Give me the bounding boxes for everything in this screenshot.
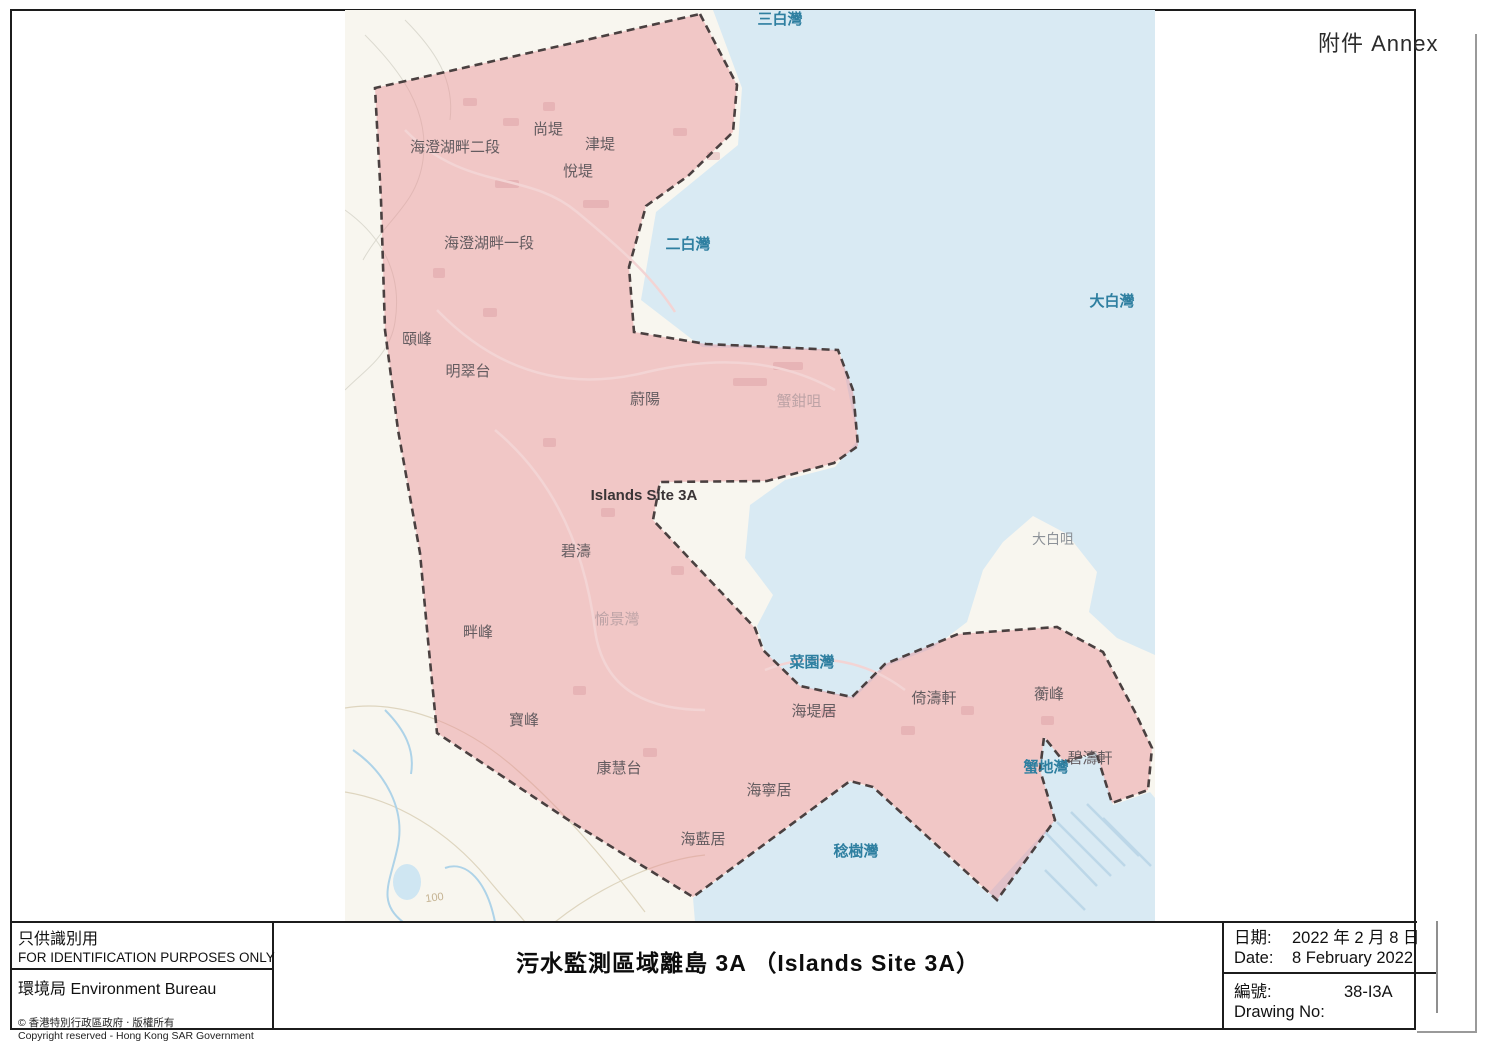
place-label: 尚堤 [533,121,563,138]
place-label: 碧濤軒 [1067,750,1112,767]
place-label: 海堤居 [791,703,836,720]
place-label: 蔚陽 [630,391,660,408]
copyright-zh: © 香港特別行政區政府 ‧ 版權所有 [10,1015,272,1030]
date-value-en: 8 February 2022 [1292,949,1413,967]
place-label: 頤峰 [402,331,432,348]
map-title: 污水監測區域離島 3A （Islands Site 3A） [276,921,1220,1001]
place-label: 蘅峰 [1034,686,1064,703]
place-label: 海澄湖畔一段 [444,235,534,252]
annex-heading: 附件 Annex [1318,26,1468,58]
place-label: 海寧居 [746,782,791,799]
place-label: 悅堤 [563,163,593,180]
bay-label: 三白灣 [757,10,802,28]
info-panel-overflow-edge [1436,921,1438,1013]
copyright-en: Copyright reserved - Hong Kong SAR Gover… [10,1030,272,1042]
pond [393,864,421,900]
place-label: 康慧台 [596,760,641,777]
bay-label: 菜園灣 [788,653,834,671]
place-label: 碧濤 [561,543,591,560]
place-label: 津堤 [585,136,615,153]
bureau-name: 環境局 Environment Bureau [10,970,272,999]
place-label: 畔峰 [463,624,493,641]
drawing-no-label-en: Drawing No: [1234,1003,1437,1022]
place-label: 海澄湖畔二段 [410,139,500,156]
place-label: 海藍居 [680,831,725,848]
place-label-faint: 蟹鉗咀 [776,393,821,410]
date-label-en: Date: [1234,949,1292,968]
drawing-no-label-zh: 編號: [1234,978,1292,1002]
document-page: 附件 Annex [0,0,1505,1058]
identification-note-en: FOR IDENTIFICATION PURPOSES ONLY [18,950,264,965]
place-label: 倚濤軒 [911,690,956,707]
place-label: 寶峰 [509,711,539,729]
place-label-faint: 愉景灣 [594,611,639,628]
site-3a-label: Islands Site 3A [591,487,698,504]
bay-label: 二白灣 [665,235,710,253]
map-svg: 三白灣 尚堤 海澄湖畔二段 津堤 悅堤 海澄湖畔一段 二白灣 大白灣 頤峰 明翠… [345,10,1155,922]
bay-label: 蟹地灣 [1023,758,1068,776]
map-canvas: 三白灣 尚堤 海澄湖畔二段 津堤 悅堤 海澄湖畔一段 二白灣 大白灣 頤峰 明翠… [345,10,1155,922]
date-value-zh: 2022 年 2 月 8 日 [1292,929,1419,947]
place-label: 明翠台 [445,363,490,380]
bay-label: 稔樹灣 [833,842,878,860]
bay-label: 大白灣 [1089,292,1134,310]
identification-note-zh: 只供識別用 [18,925,264,949]
identification-panel: 只供識別用 FOR IDENTIFICATION PURPOSES ONLY 環… [10,921,274,1030]
underlying-page-edge [1417,34,1477,1033]
drawing-info-panel: 日期:2022 年 2 月 8 日 Date:8 February 2022 編… [1222,921,1437,1030]
contour-label: 100 [425,891,445,905]
headland-label: 大白咀 [1032,531,1074,547]
drawing-no-value: 38-I3A [1344,983,1393,1001]
date-label-zh: 日期: [1234,924,1292,948]
